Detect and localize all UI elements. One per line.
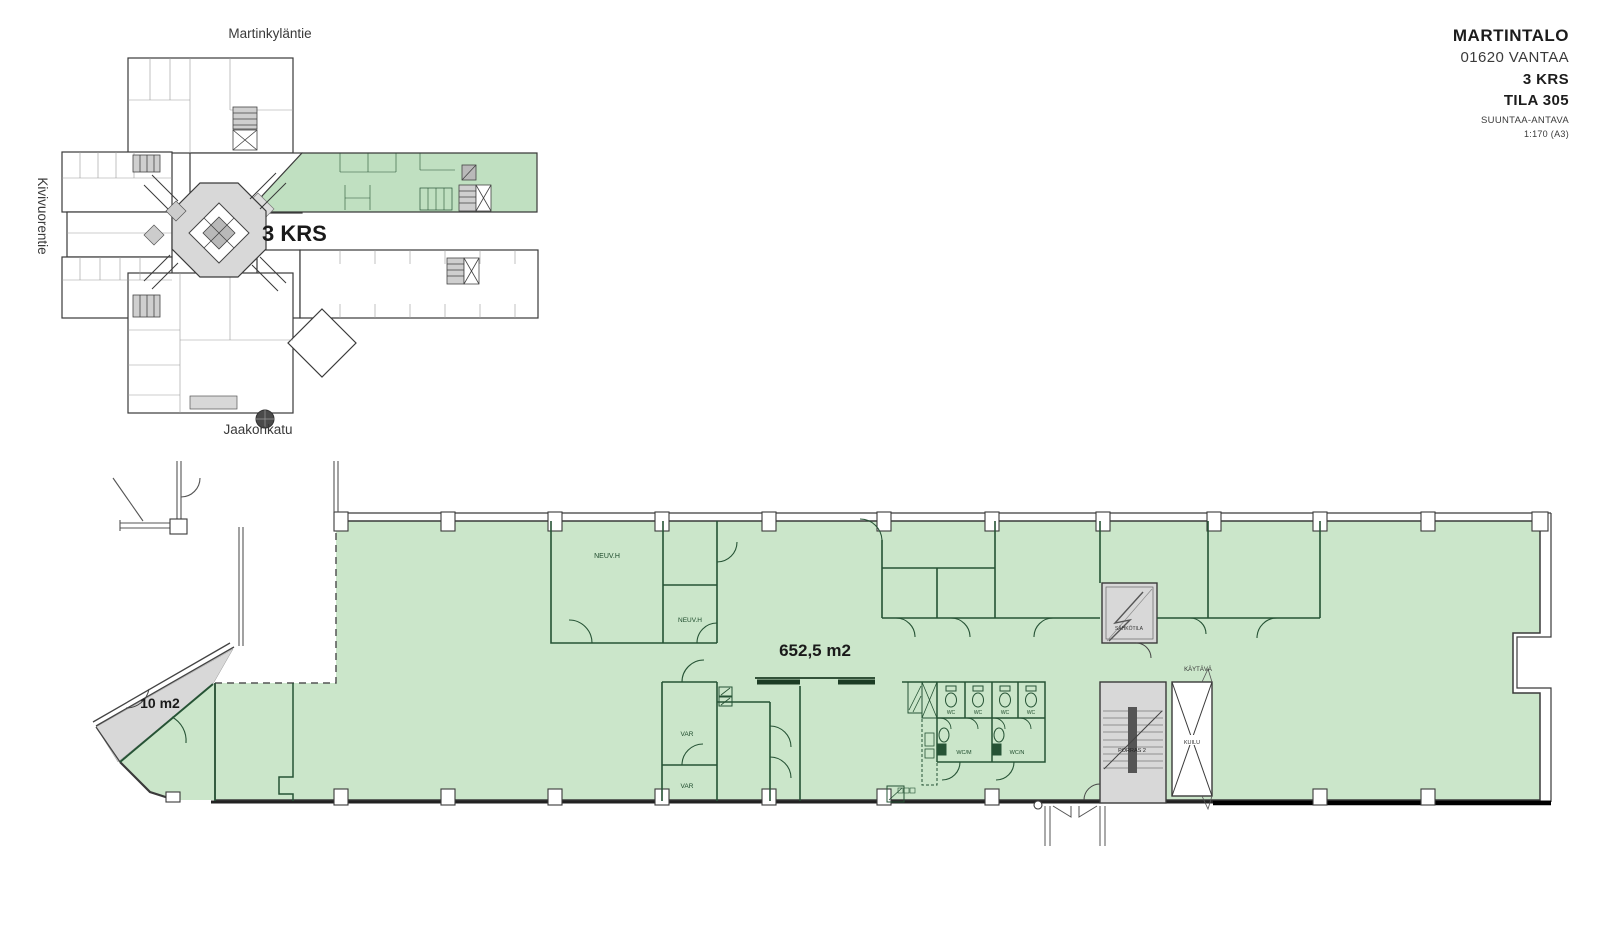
- room-label-wc-men: WC/M: [956, 750, 972, 756]
- room-label-corridor: KÄYTÄVÄ: [1184, 666, 1212, 673]
- overview-key-plan: Martinkyläntie Kivivuorentie Jaakonkatu …: [25, 8, 570, 448]
- room-label-wc-4: WC: [1027, 710, 1036, 716]
- street-label-left: Kivivuorentie: [35, 177, 50, 254]
- room-label-storage-lower: VAR: [681, 783, 694, 790]
- room-label-wc-women: WC/N: [1010, 750, 1025, 756]
- drawing-scale: 1:170 (A3): [1453, 128, 1569, 141]
- street-label-top: Martinkyläntie: [228, 26, 311, 41]
- floor-number: 3 KRS: [1453, 69, 1569, 90]
- room-label-wc-2: WC: [974, 710, 983, 716]
- overview-floor-label: 3 KRS: [262, 221, 327, 246]
- space-boundary-dashed: [215, 521, 336, 683]
- room-label-stairs: PORRAS 2: [1118, 748, 1146, 754]
- adjacent-wall-fragments: [113, 461, 338, 646]
- overview-highlighted-wing: [262, 153, 537, 212]
- space-area-main: [215, 521, 1540, 800]
- street-label-bottom: Jaakonkatu: [223, 422, 292, 437]
- room-label-electrical: SÄHKÖTILA: [1115, 625, 1144, 632]
- building-name: MARTINTALO: [1453, 25, 1569, 47]
- room-label-meeting-small: NEUV.H: [678, 617, 702, 624]
- overview-entrance: [190, 396, 237, 409]
- room-label-wc-3: WC: [1001, 710, 1010, 716]
- room-label-shaft: KUILU: [1184, 740, 1200, 746]
- detail-floor-plan: NEUV.H NEUV.H 652,5 m2 10 m2 VAR VAR WC …: [90, 450, 1560, 865]
- indicative-note: SUUNTAA-ANTAVA: [1453, 113, 1569, 128]
- area-label-entry: 10 m2: [140, 695, 180, 711]
- building-address: 01620 VANTAA: [1453, 47, 1569, 69]
- elevator-shaft: [1172, 669, 1212, 809]
- room-label-meeting-large: NEUV.H: [594, 553, 620, 560]
- space-number: TILA 305: [1453, 90, 1569, 111]
- room-label-storage-upper: VAR: [681, 731, 694, 738]
- title-block: MARTINTALO 01620 VANTAA 3 KRS TILA 305 S…: [1453, 25, 1569, 141]
- exterior-entrance-walls: [1045, 806, 1105, 846]
- area-label-total: 652,5 m2: [779, 641, 851, 660]
- room-label-wc-1: WC: [947, 710, 956, 716]
- drawing-sheet: MARTINTALO 01620 VANTAA 3 KRS TILA 305 S…: [0, 0, 1600, 925]
